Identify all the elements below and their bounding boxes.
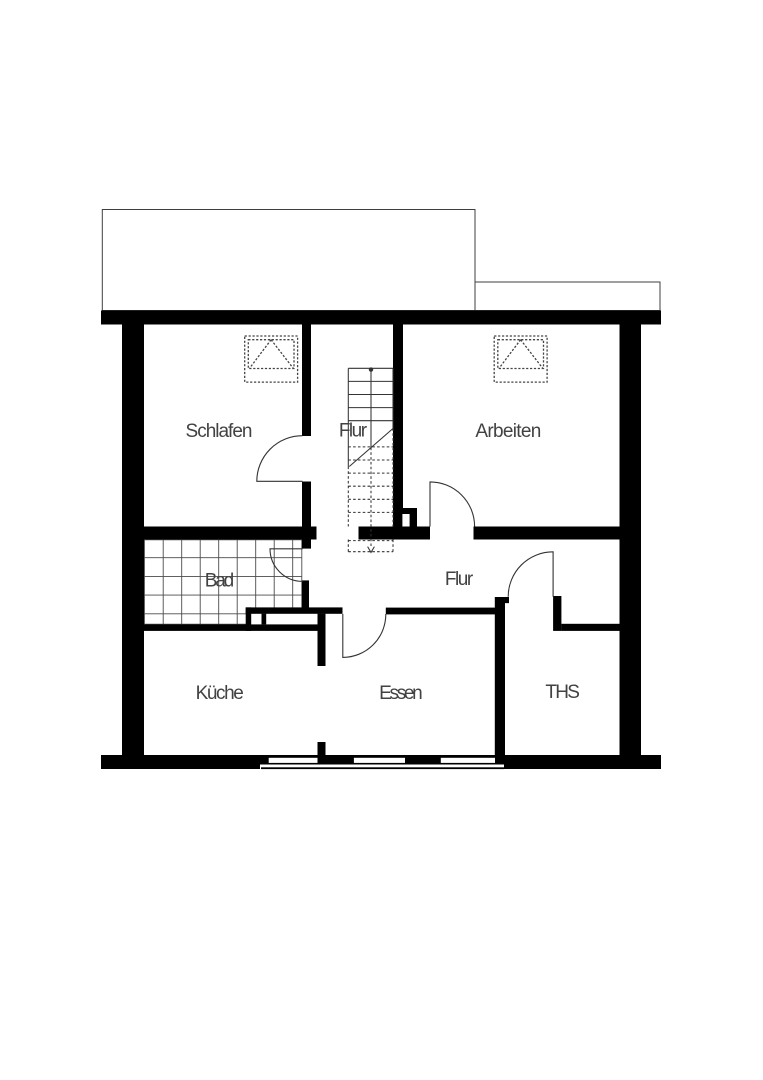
- svg-text:Schlafen: Schlafen: [186, 421, 252, 442]
- svg-text:Flur: Flur: [445, 569, 474, 590]
- svg-text:THS: THS: [545, 682, 579, 703]
- svg-text:Arbeiten: Arbeiten: [475, 421, 540, 442]
- svg-text:Flur: Flur: [339, 420, 368, 441]
- svg-text:Bad: Bad: [205, 570, 234, 591]
- svg-text:Essen: Essen: [379, 683, 422, 704]
- svg-text:Küche: Küche: [196, 683, 244, 704]
